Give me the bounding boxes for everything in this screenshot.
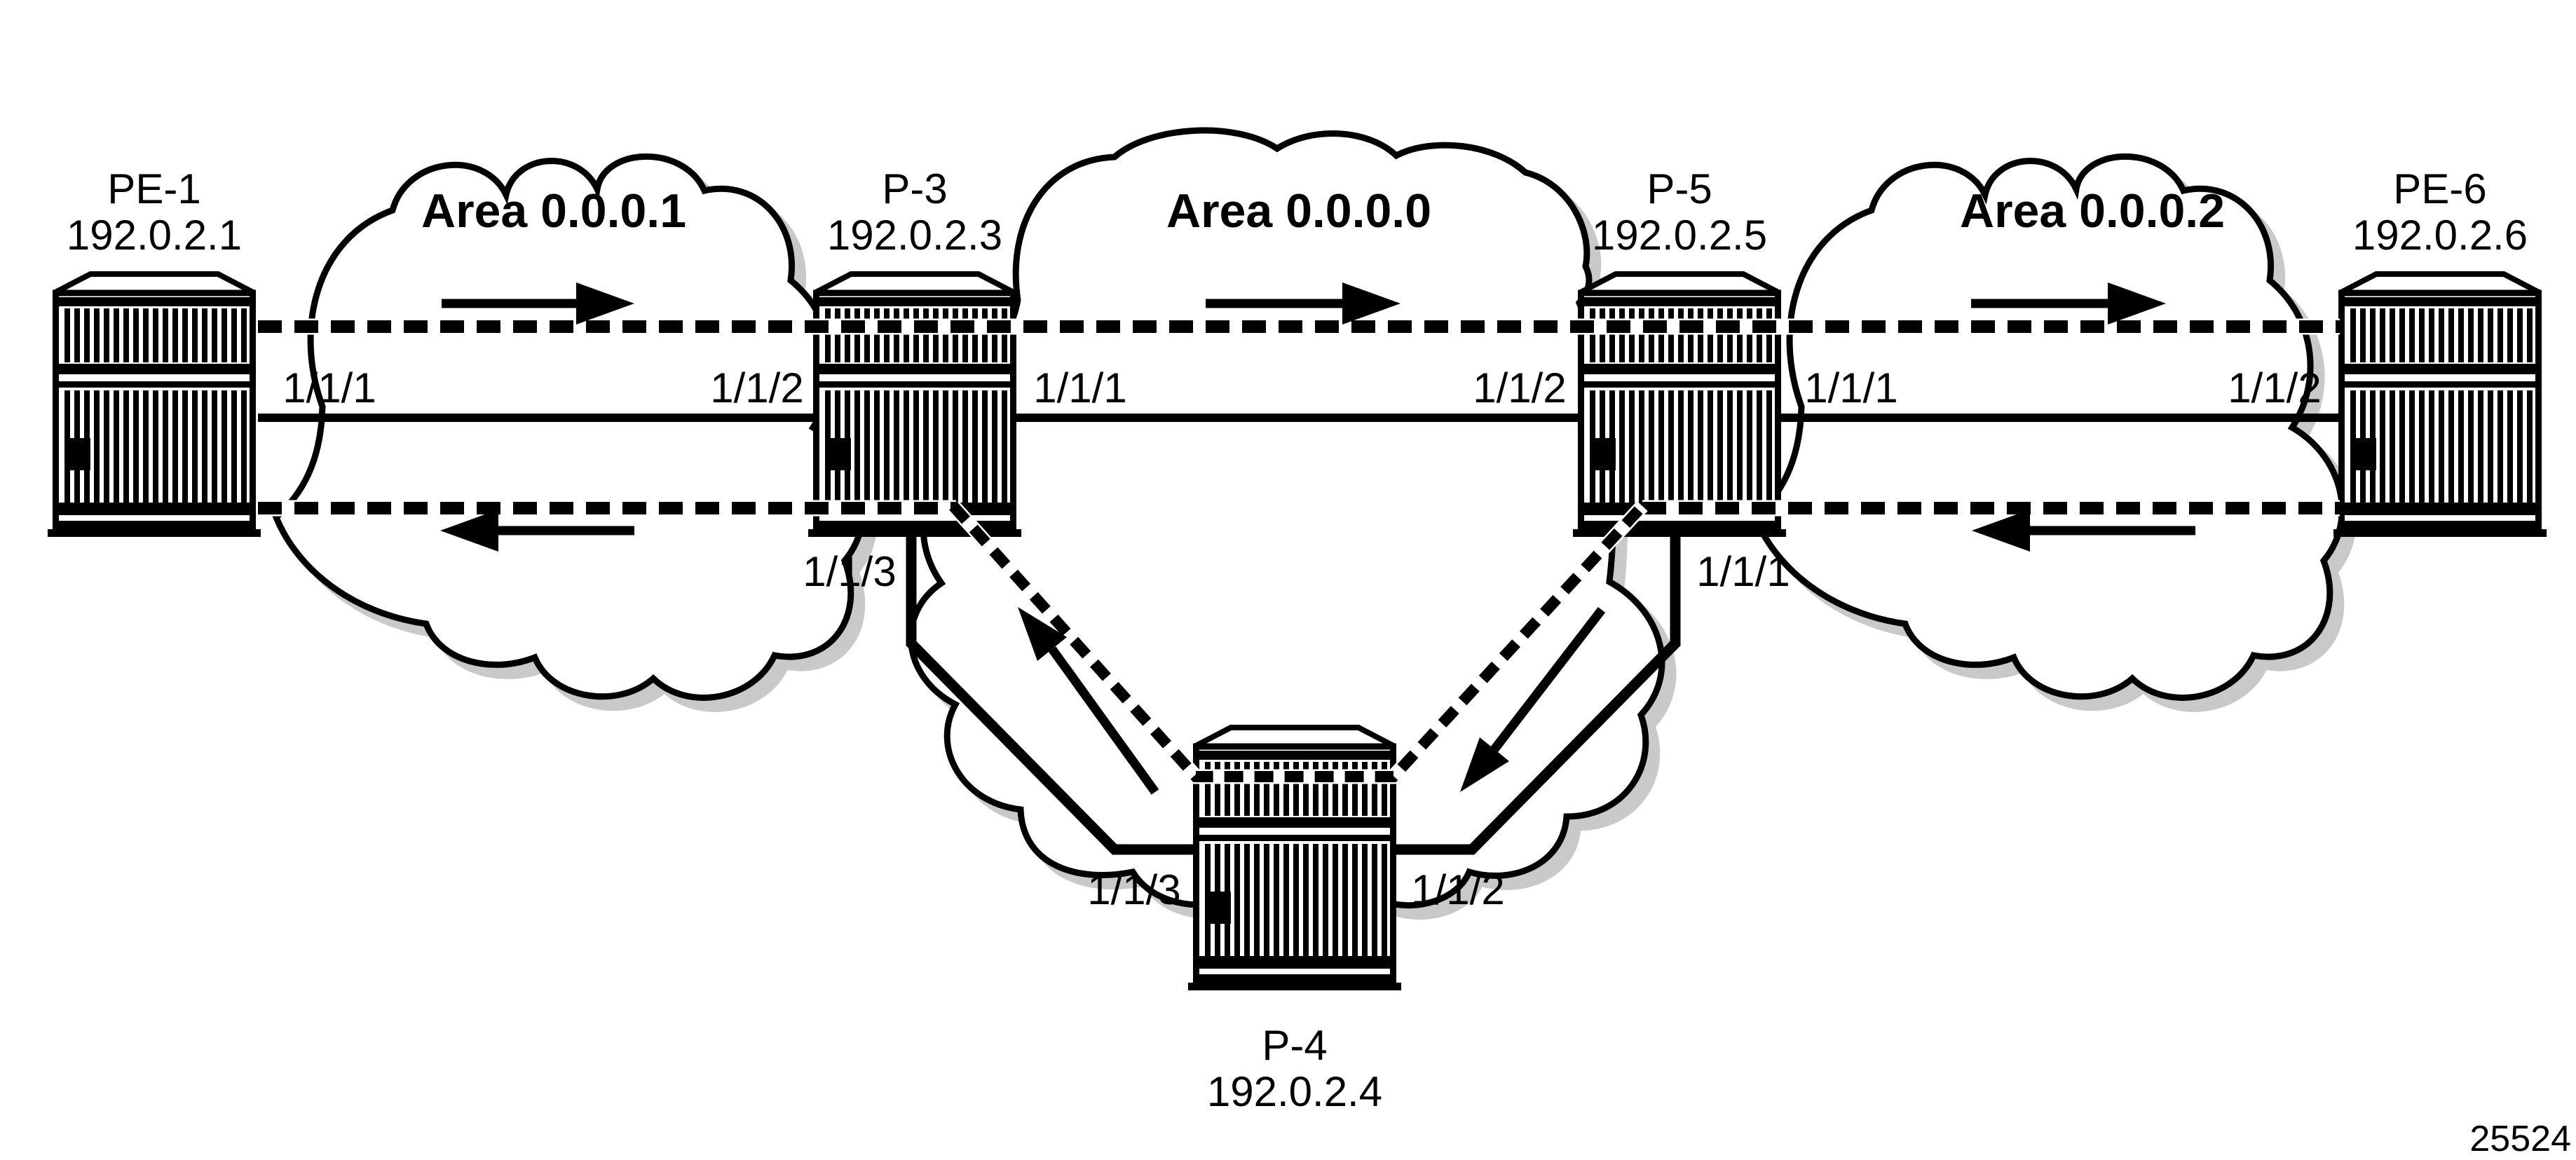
topology-canvas: PE-1 192.0.2.1 P-3 192.0.2.3 P-5 192.0.2… [0,0,2576,1160]
iface-p4-113: 1/1/3 [1087,866,1180,913]
router-pe1-name: PE-1 [107,165,200,212]
router-pe6 [2333,274,2547,537]
router-p3-ip: 192.0.2.3 [827,212,1002,259]
area-0002-label: Area 0.0.0.2 [1960,184,2225,238]
network-diagram: PE-1 192.0.2.1 P-3 192.0.2.3 P-5 192.0.2… [0,0,2576,1160]
iface-p5-111: 1/1/1 [1804,364,1897,411]
router-p3-name: P-3 [882,165,947,212]
iface-pe6-112: 1/1/2 [2228,364,2321,411]
iface-p5-down-111: 1/1/1 [1696,548,1790,595]
router-pe6-ip: 192.0.2.6 [2352,212,2528,259]
iface-p4-112: 1/1/2 [1411,866,1504,913]
router-p5-ip: 192.0.2.5 [1592,212,1767,259]
router-pe1-ip: 192.0.2.1 [67,212,242,259]
iface-p3-113: 1/1/3 [803,548,896,595]
iface-p3-111: 1/1/1 [1033,364,1126,411]
router-p4-name: P-4 [1262,1022,1327,1069]
cloud-outline [276,156,863,697]
router-p5 [1573,274,1786,537]
figure-number: 25524 [2469,1119,2571,1159]
area-0001-label: Area 0.0.0.1 [421,184,686,238]
router-p4-ip: 192.0.2.4 [1207,1068,1382,1115]
router-p4 [1188,728,1401,990]
router-p3 [808,274,1021,537]
iface-p5-112: 1/1/2 [1473,364,1566,411]
cloud-outline [1755,156,2342,697]
router-pe6-name: PE-6 [2393,165,2486,212]
router-p5-name: P-5 [1647,165,1712,212]
cloud-area-0002 [1755,156,2353,709]
router-pe1 [48,274,261,537]
area-0000-label: Area 0.0.0.0 [1166,184,1431,238]
cloud-area-0001 [276,156,874,709]
iface-pe1-111: 1/1/1 [282,364,376,411]
iface-p3-112: 1/1/2 [710,364,803,411]
